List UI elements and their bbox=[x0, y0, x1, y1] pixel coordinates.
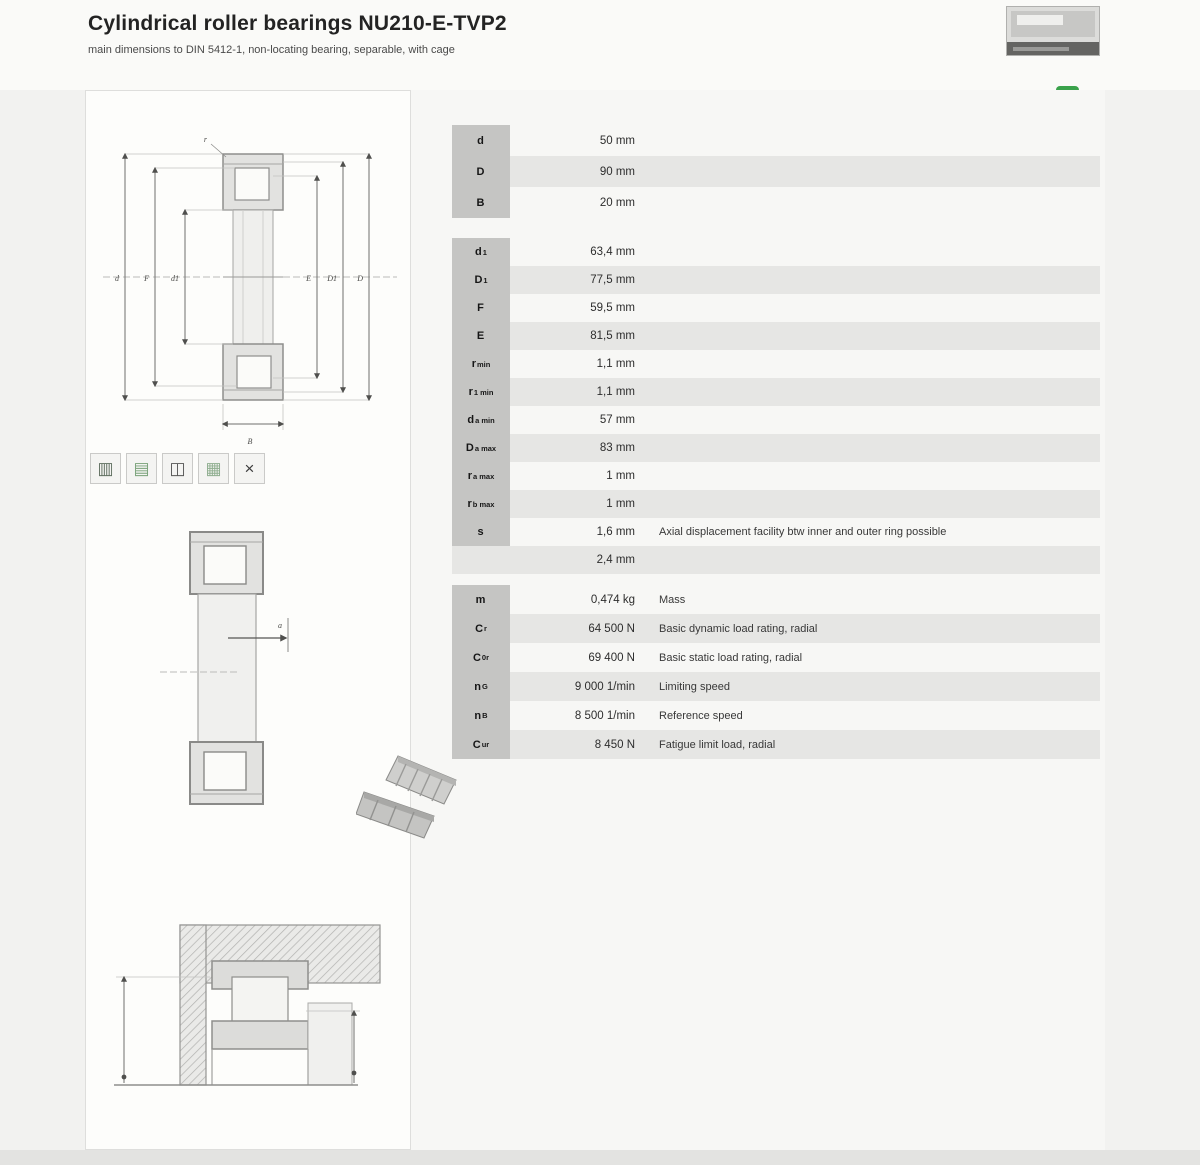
spec-row: C0r 69 400 N Basic static load rating, r… bbox=[452, 643, 1100, 672]
dim-label-D1: D1 bbox=[326, 274, 337, 283]
spec-value: 1 mm bbox=[510, 470, 637, 482]
spec-row: Cr 64 500 N Basic dynamic load rating, r… bbox=[452, 614, 1100, 643]
spec-label: Cur bbox=[452, 730, 510, 759]
spec-value: 63,4 mm bbox=[510, 246, 637, 258]
spec-value: 8 450 N bbox=[510, 739, 637, 751]
spec-value: 59,5 mm bbox=[510, 302, 637, 314]
spec-label: rmin bbox=[452, 350, 510, 378]
spec-row: Cur 8 450 N Fatigue limit load, radial bbox=[452, 730, 1100, 759]
spec-row: nB 8 500 1/min Reference speed bbox=[452, 701, 1100, 730]
spec-desc: Fatigue limit load, radial bbox=[659, 739, 1100, 751]
spec-row: nG 9 000 1/min Limiting speed bbox=[452, 672, 1100, 701]
spec-label: ra max bbox=[452, 462, 510, 490]
spec-desc: Mass bbox=[659, 594, 1100, 606]
dim-label-r: r bbox=[204, 135, 208, 144]
spec-row: rmin 1,1 mm bbox=[452, 350, 1100, 378]
spec-value: 20 mm bbox=[510, 197, 637, 209]
spec-label: d1 bbox=[452, 238, 510, 266]
spec-label: nG bbox=[452, 672, 510, 701]
spec-row: d1 63,4 mm bbox=[452, 238, 1100, 266]
spec-value: 81,5 mm bbox=[510, 330, 637, 342]
design-variant-icon: ◫ bbox=[162, 453, 193, 484]
spec-value: 64 500 N bbox=[510, 623, 637, 635]
feature-icons-row: ▥▤◫▦× bbox=[90, 453, 265, 484]
spec-value: 2,4 mm bbox=[510, 554, 637, 566]
spec-label bbox=[452, 546, 510, 574]
spec-row: rb max 1 mm bbox=[452, 490, 1100, 518]
dim-label-B: B bbox=[248, 437, 253, 446]
cage-type-icon: ▤ bbox=[126, 453, 157, 484]
brand-logo-highlight bbox=[1017, 15, 1063, 25]
spec-value: 90 mm bbox=[510, 166, 637, 178]
spec-label: D bbox=[452, 156, 510, 187]
spec-label: Cr bbox=[452, 614, 510, 643]
spec-value: 1,1 mm bbox=[510, 386, 637, 398]
dim-label-F: F bbox=[143, 274, 149, 283]
spec-value: 8 500 1/min bbox=[510, 710, 637, 722]
spec-desc: Basic static load rating, radial bbox=[659, 652, 1100, 664]
spec-row: E 81,5 mm bbox=[452, 322, 1100, 350]
spec-row: 2,4 mm bbox=[452, 546, 1100, 574]
page-subtitle: main dimensions to DIN 5412-1, non-locat… bbox=[88, 44, 455, 56]
spec-label: d bbox=[452, 125, 510, 156]
spec-value: 0,474 kg bbox=[510, 594, 637, 606]
spec-label: r1 min bbox=[452, 378, 510, 406]
lubrication-icon: ▦ bbox=[198, 453, 229, 484]
spec-value: 77,5 mm bbox=[510, 274, 637, 286]
spec-value: 1,1 mm bbox=[510, 358, 637, 370]
dim-label-D: D bbox=[356, 274, 363, 283]
spec-value: 1,6 mm bbox=[510, 526, 637, 538]
spec-desc: Limiting speed bbox=[659, 681, 1100, 693]
spec-label: m bbox=[452, 585, 510, 614]
spec-desc: Basic dynamic load rating, radial bbox=[659, 623, 1100, 635]
spec-label: D1 bbox=[452, 266, 510, 294]
spec-block-main-dimensions: d 50 mm D 90 mm B 20 mm bbox=[452, 125, 1100, 218]
bottom-band bbox=[0, 1150, 1200, 1165]
spec-label: E bbox=[452, 322, 510, 350]
dim-label-E: E bbox=[305, 274, 311, 283]
brand-logo[interactable] bbox=[1006, 6, 1100, 56]
spec-row: r1 min 1,1 mm bbox=[452, 378, 1100, 406]
spec-label: F bbox=[452, 294, 510, 322]
suffix-icon: × bbox=[234, 453, 265, 484]
front-view-drawing: d F d1 E D1 D r B bbox=[95, 118, 405, 453]
spec-row: D 90 mm bbox=[452, 156, 1100, 187]
spec-label: C0r bbox=[452, 643, 510, 672]
spec-value: 50 mm bbox=[510, 135, 637, 147]
spec-block-dimensions: d1 63,4 mm D1 77,5 mm F 59,5 mm E 81,5 m… bbox=[452, 238, 1100, 574]
spec-value: 1 mm bbox=[510, 498, 637, 510]
spec-row: F 59,5 mm bbox=[452, 294, 1100, 322]
spec-block-load-ratings: m 0,474 kg Mass Cr 64 500 N Basic dynami… bbox=[452, 585, 1100, 759]
spec-label: nB bbox=[452, 701, 510, 730]
mounting-drawing bbox=[100, 893, 400, 1108]
spec-value: 9 000 1/min bbox=[510, 681, 637, 693]
dim-label-a: a bbox=[278, 621, 282, 630]
spec-row: s 1,6 mm Axial displacement facility btw… bbox=[452, 518, 1100, 546]
spec-label: da min bbox=[452, 406, 510, 434]
datasheet-page: Cylindrical roller bearings NU210-E-TVP2… bbox=[0, 0, 1200, 1165]
page-title: Cylindrical roller bearings NU210-E-TVP2 bbox=[88, 12, 507, 36]
spec-row: ra max 1 mm bbox=[452, 462, 1100, 490]
spec-row: Da max 83 mm bbox=[452, 434, 1100, 462]
spec-label: B bbox=[452, 187, 510, 218]
spec-label: rb max bbox=[452, 490, 510, 518]
spec-row: da min 57 mm bbox=[452, 406, 1100, 434]
spec-desc: Axial displacement facility btw inner an… bbox=[659, 526, 1100, 538]
spec-label: Da max bbox=[452, 434, 510, 462]
bearing-section-icon: ▥ bbox=[90, 453, 121, 484]
spec-value: 83 mm bbox=[510, 442, 637, 454]
dim-label-d: d bbox=[115, 274, 120, 283]
spec-row: B 20 mm bbox=[452, 187, 1100, 218]
spec-label: s bbox=[452, 518, 510, 546]
spec-value: 57 mm bbox=[510, 414, 637, 426]
spec-value: 69 400 N bbox=[510, 652, 637, 664]
spec-row: d 50 mm bbox=[452, 125, 1100, 156]
parts-iso-drawing bbox=[356, 742, 466, 850]
spec-desc: Reference speed bbox=[659, 710, 1100, 722]
dim-label-d1: d1 bbox=[171, 274, 179, 283]
spec-row: m 0,474 kg Mass bbox=[452, 585, 1100, 614]
cross-section-drawing: a bbox=[140, 500, 390, 930]
spec-row: D1 77,5 mm bbox=[452, 266, 1100, 294]
brand-logo-text-dash bbox=[1013, 47, 1069, 51]
